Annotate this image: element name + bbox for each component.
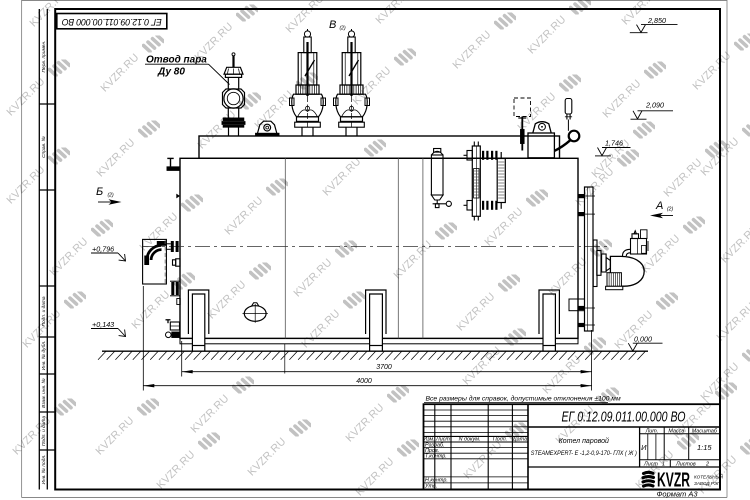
svg-text:Перв. примен.: Перв. примен. xyxy=(41,41,47,73)
svg-text:Т.контр.: Т.контр. xyxy=(425,454,447,460)
svg-text:Взам. инв. №: Взам. инв. № xyxy=(41,378,47,408)
svg-text:Утв.: Утв. xyxy=(424,484,437,490)
svg-text:2,850: 2,850 xyxy=(647,16,666,25)
svg-text:КОТЕЛЬНЫЙ: КОТЕЛЬНЫЙ xyxy=(694,473,724,480)
svg-text:2,090: 2,090 xyxy=(645,101,664,110)
svg-text:Масса: Масса xyxy=(668,428,684,434)
svg-text:Подп. и дата: Подп. и дата xyxy=(41,416,47,446)
svg-text:Масштаб: Масштаб xyxy=(692,428,718,434)
svg-text:+0,143: +0,143 xyxy=(92,320,114,329)
svg-text:N докум.: N докум. xyxy=(459,437,481,443)
svg-text:1,746: 1,746 xyxy=(605,138,623,147)
svg-text:STEAMEXPERT- Е -1,2-0,9-170- Г: STEAMEXPERT- Е -1,2-0,9-170- ГЛХ ( Ж ) xyxy=(531,451,637,457)
svg-text:Подп.: Подп. xyxy=(493,437,507,443)
svg-text:1:15: 1:15 xyxy=(697,443,712,452)
svg-text:Лист: Лист xyxy=(643,461,658,467)
svg-text:ЕГ 0.12.09.011.00.000 ВО: ЕГ 0.12.09.011.00.000 ВО xyxy=(562,409,686,425)
svg-text:Инв. № дубл.: Инв. № дубл. xyxy=(41,341,47,371)
svg-text:4000: 4000 xyxy=(356,378,372,385)
svg-text:(2): (2) xyxy=(667,207,673,213)
svg-text:И: И xyxy=(641,443,647,452)
svg-text:(2): (2) xyxy=(108,193,114,199)
svg-text:Б: Б xyxy=(96,186,103,198)
svg-text:Н.контр.: Н.контр. xyxy=(425,478,448,484)
svg-text:Дата: Дата xyxy=(512,437,527,443)
svg-text:Подп. и дата: Подп. и дата xyxy=(41,296,47,326)
svg-text:Все размеры для справок, допу: Все размеры для справок, допустимые откл… xyxy=(426,395,621,403)
svg-text:Листов: Листов xyxy=(675,461,696,467)
svg-text:Инв. № подл.: Инв. № подл. xyxy=(41,455,47,485)
svg-text:Котел паровой: Котел паровой xyxy=(559,437,609,445)
svg-text:2: 2 xyxy=(705,461,709,467)
svg-text:В: В xyxy=(329,19,336,31)
svg-text:А: А xyxy=(655,200,663,212)
svg-text:ЕГ 0.12.09.011.00.000 ВО: ЕГ 0.12.09.011.00.000 ВО xyxy=(62,17,162,27)
svg-text:Формат А3: Формат А3 xyxy=(656,489,698,498)
svg-text:1: 1 xyxy=(662,461,665,467)
svg-text:+0,796: +0,796 xyxy=(92,244,114,253)
svg-text:Справ. №: Справ. № xyxy=(41,136,47,158)
svg-text:0,000: 0,000 xyxy=(634,334,652,343)
svg-text:KVZR: KVZR xyxy=(657,469,690,491)
svg-text:Ду 80: Ду 80 xyxy=(157,67,185,78)
svg-text:3700: 3700 xyxy=(376,364,392,371)
svg-text:(2): (2) xyxy=(340,26,346,32)
svg-text:ЗАВОД РЭП: ЗАВОД РЭП xyxy=(694,481,721,486)
svg-text:Лит.: Лит. xyxy=(645,428,659,434)
